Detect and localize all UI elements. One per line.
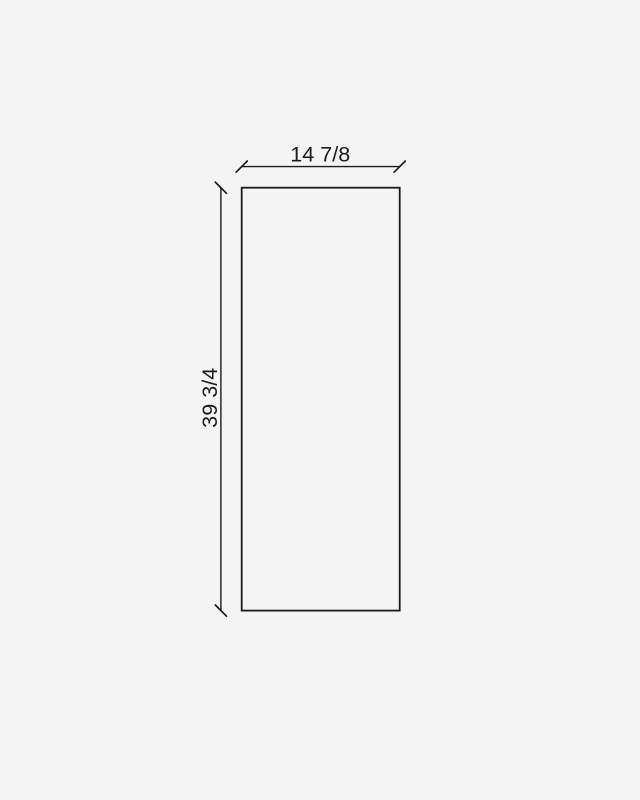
svg-text:39 3/4: 39 3/4 [197,368,222,428]
svg-text:14 7/8: 14 7/8 [290,142,350,167]
